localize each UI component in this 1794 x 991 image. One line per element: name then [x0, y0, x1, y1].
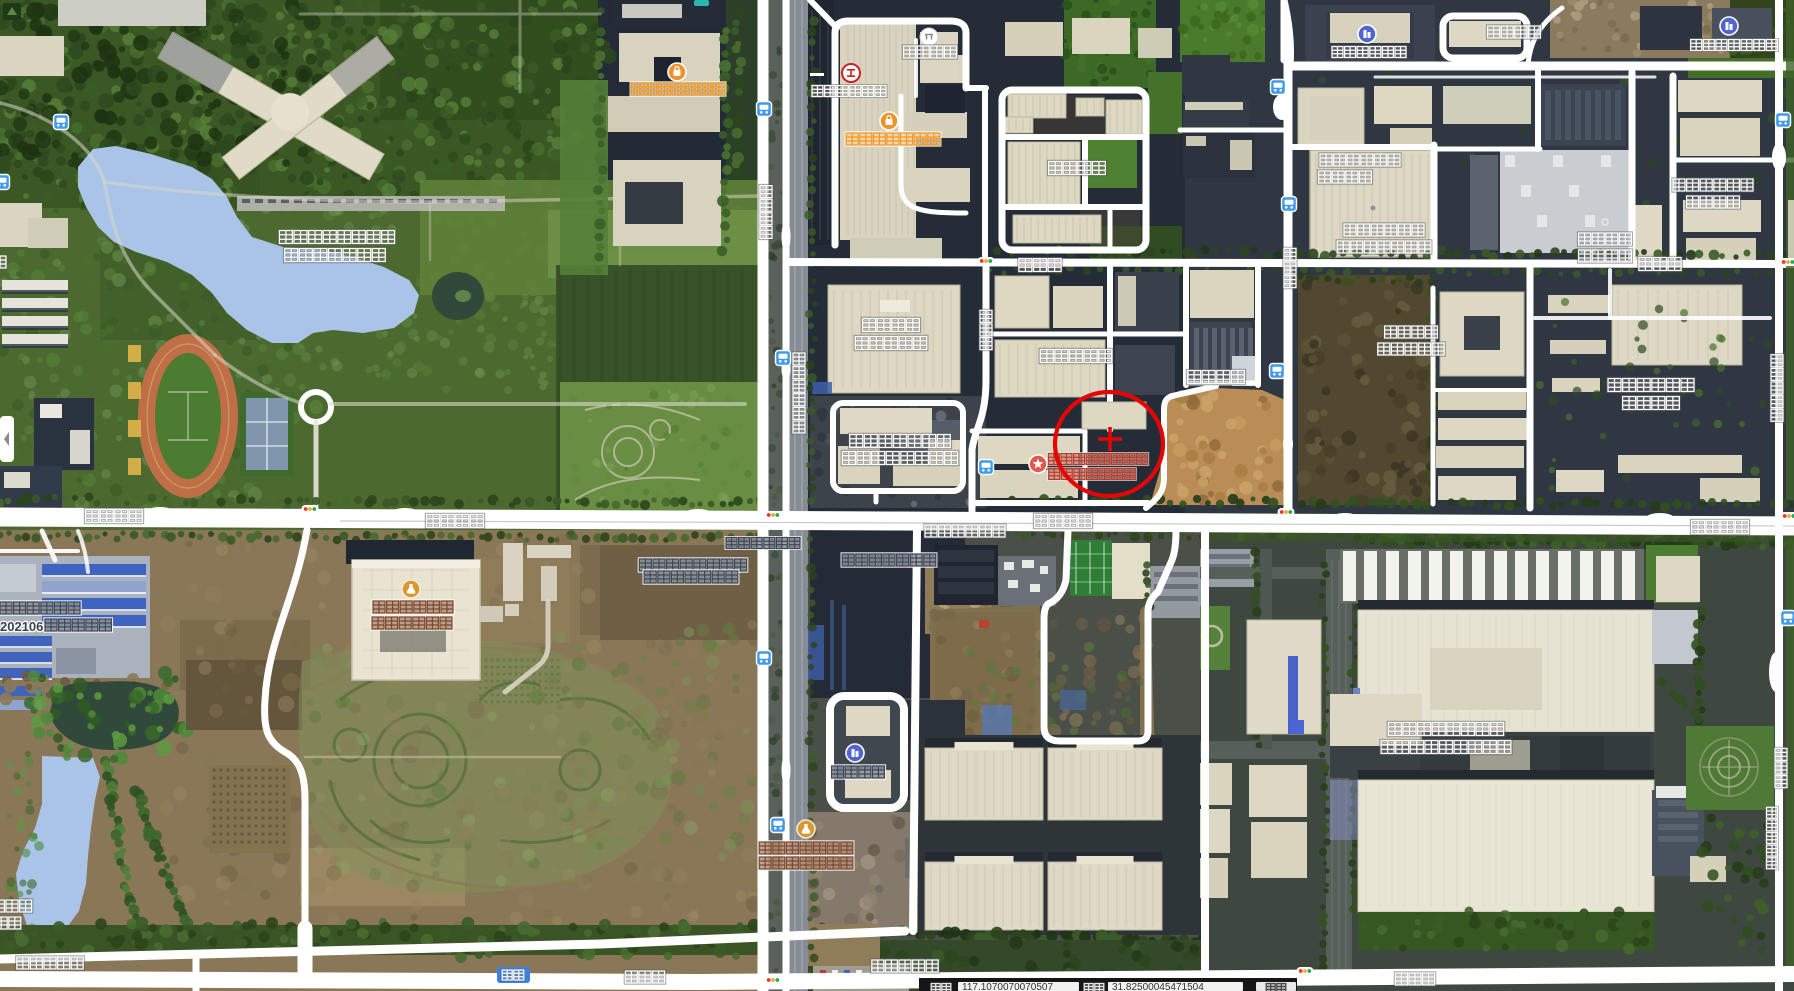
svg-text:202106: 202106	[0, 619, 43, 634]
svg-text:31.82500045471504: 31.82500045471504	[1112, 982, 1204, 991]
svg-text:117.1070070070507: 117.1070070070507	[962, 982, 1053, 991]
